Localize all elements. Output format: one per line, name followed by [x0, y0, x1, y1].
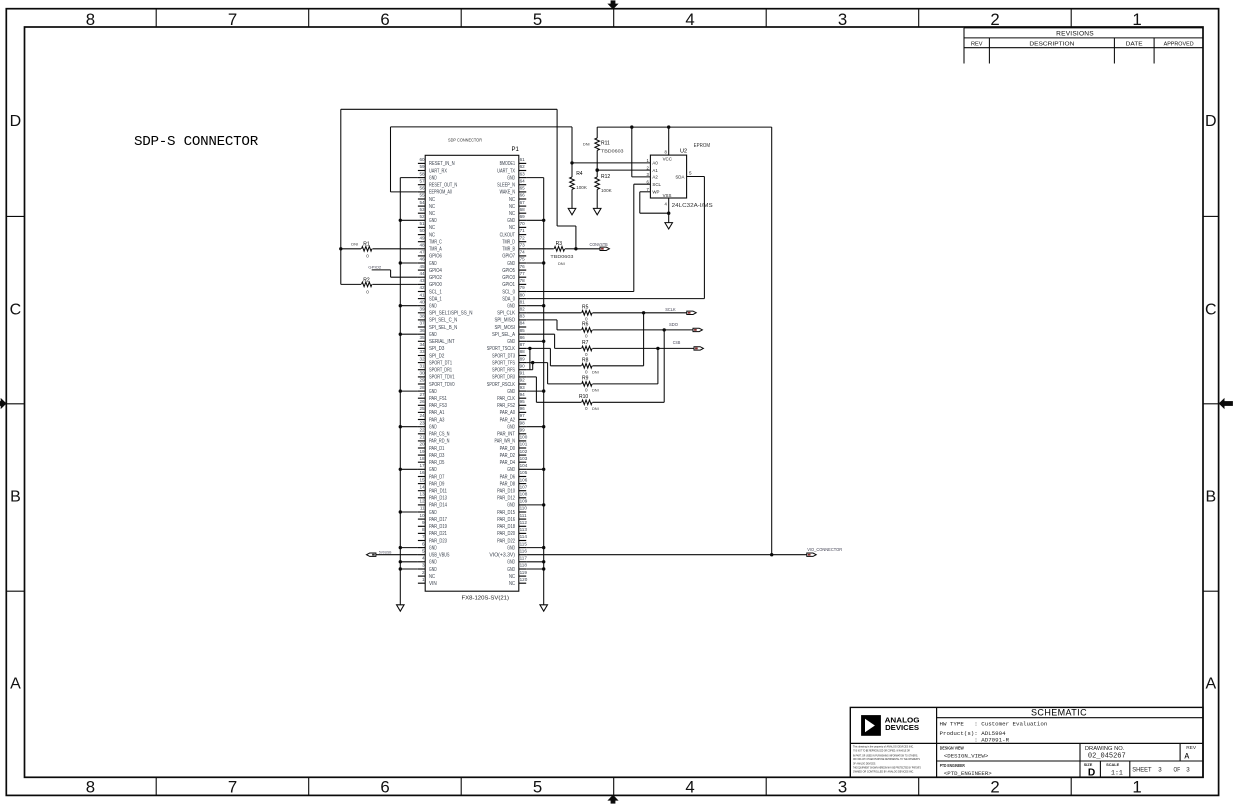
- svg-text:GPIO6: GPIO6: [429, 254, 442, 260]
- svg-text:VIO(+3.3V): VIO(+3.3V): [489, 553, 515, 559]
- svg-text:SDP CONNECTOR: SDP CONNECTOR: [448, 138, 483, 143]
- svg-text:12: 12: [419, 499, 425, 504]
- svg-text:0: 0: [585, 316, 588, 321]
- svg-text:109: 109: [520, 499, 528, 504]
- svg-text:GND: GND: [429, 510, 437, 516]
- svg-text:PAR_A2: PAR_A2: [500, 417, 515, 423]
- svg-text:GND: GND: [507, 545, 515, 551]
- svg-text:98: 98: [520, 420, 526, 425]
- svg-text:02_045267: 02_045267: [1088, 753, 1126, 761]
- svg-text:13: 13: [419, 492, 425, 497]
- svg-text:SDA: SDA: [675, 174, 684, 179]
- svg-text:29: 29: [419, 378, 425, 383]
- svg-text:PAR_FS2: PAR_FS2: [497, 403, 515, 409]
- svg-text:91: 91: [520, 371, 526, 376]
- svg-text:USB_VBUS: USB_VBUS: [429, 553, 450, 559]
- svg-text:79: 79: [520, 285, 526, 290]
- svg-text:C: C: [10, 301, 22, 318]
- svg-text:SIZE: SIZE: [1084, 762, 1093, 767]
- svg-text:8: 8: [86, 777, 95, 796]
- svg-text:SPI_SEL1\SPI_SS_N: SPI_SEL1\SPI_SS_N: [429, 311, 473, 317]
- svg-text:PAR_FS1: PAR_FS1: [429, 396, 447, 402]
- svg-text:43: 43: [419, 278, 425, 283]
- svg-text:R11: R11: [601, 140, 610, 146]
- svg-text:PAR_D6: PAR_D6: [500, 474, 515, 480]
- svg-text:NC: NC: [429, 232, 435, 238]
- svg-text:3: 3: [1186, 766, 1190, 773]
- svg-text:APPROVED: APPROVED: [1164, 41, 1194, 47]
- svg-text:59: 59: [419, 164, 425, 169]
- svg-text:65: 65: [520, 186, 526, 191]
- svg-text:101: 101: [520, 442, 528, 447]
- svg-text:D: D: [10, 113, 22, 130]
- svg-text:SPORT_DR3: SPORT_DR3: [492, 375, 515, 381]
- svg-text:77: 77: [520, 271, 526, 276]
- svg-text:SCHEMATIC: SCHEMATIC: [1031, 708, 1087, 718]
- svg-text:45: 45: [419, 264, 425, 269]
- svg-text:RESET_IN_N: RESET_IN_N: [429, 161, 455, 167]
- svg-text:SCL_0: SCL_0: [502, 289, 515, 295]
- svg-text:0: 0: [366, 254, 369, 259]
- svg-text:PAR_D5: PAR_D5: [429, 460, 444, 466]
- svg-text:R1: R1: [363, 242, 370, 248]
- svg-text:55: 55: [419, 193, 425, 198]
- svg-text:0: 0: [585, 388, 588, 393]
- svg-text:GND: GND: [429, 261, 437, 267]
- svg-text:100K: 100K: [576, 185, 588, 190]
- svg-text:51: 51: [419, 221, 425, 226]
- svg-text:110: 110: [520, 506, 528, 511]
- svg-text:NC: NC: [509, 225, 515, 231]
- svg-text:24LC32A-I/MS: 24LC32A-I/MS: [672, 203, 714, 209]
- svg-text:VSS: VSS: [663, 193, 672, 198]
- svg-text:GND: GND: [507, 560, 515, 566]
- svg-text:VIO_CONNECTOR: VIO_CONNECTOR: [807, 547, 842, 552]
- svg-text:20: 20: [419, 442, 425, 447]
- svg-text:GND: GND: [507, 389, 515, 395]
- svg-text:40: 40: [419, 299, 425, 304]
- svg-text:<DESIGN_VIEW>: <DESIGN_VIEW>: [944, 753, 989, 760]
- svg-text:GND: GND: [429, 425, 437, 431]
- svg-text:CSB: CSB: [673, 340, 681, 345]
- svg-text:108: 108: [520, 492, 528, 497]
- svg-text:88: 88: [520, 349, 526, 354]
- svg-text:GND: GND: [507, 304, 515, 310]
- svg-text:BMODE1: BMODE1: [500, 161, 515, 167]
- svg-text:75: 75: [520, 257, 526, 262]
- svg-text:118: 118: [520, 563, 528, 568]
- svg-text:PAR_D4: PAR_D4: [500, 460, 515, 466]
- svg-text:5: 5: [533, 10, 542, 29]
- svg-text:VIN: VIN: [429, 581, 437, 587]
- svg-text:DATE: DATE: [1126, 41, 1143, 47]
- svg-text:89: 89: [520, 356, 526, 361]
- svg-text:44: 44: [419, 271, 425, 276]
- svg-text:GND: GND: [507, 218, 515, 224]
- svg-text:RESET_OUT_N: RESET_OUT_N: [429, 183, 457, 189]
- svg-text:GND: GND: [429, 304, 437, 310]
- svg-text:NC: NC: [509, 197, 515, 203]
- svg-text:PAR_D0: PAR_D0: [500, 446, 515, 452]
- svg-text:U2: U2: [680, 149, 687, 155]
- svg-text:A: A: [10, 676, 21, 693]
- svg-text:104: 104: [520, 463, 528, 468]
- svg-text:DESIGN VIEW: DESIGN VIEW: [940, 746, 965, 751]
- svg-text:15: 15: [419, 477, 425, 482]
- svg-text:UART_RX: UART_RX: [429, 168, 447, 174]
- svg-text:SPI_SEL_B_N: SPI_SEL_B_N: [429, 325, 457, 331]
- svg-text:32: 32: [419, 356, 425, 361]
- svg-text:85: 85: [520, 328, 526, 333]
- svg-text:DRAWING NO.: DRAWING NO.: [1085, 746, 1125, 752]
- svg-text:68: 68: [520, 207, 526, 212]
- svg-text:GND: GND: [429, 567, 437, 573]
- svg-text:PAR_D7: PAR_D7: [429, 474, 444, 480]
- svg-text:GPIO1: GPIO1: [502, 282, 515, 288]
- svg-text:NC: NC: [429, 574, 435, 580]
- svg-text:PAR_WR_N: PAR_WR_N: [495, 439, 516, 445]
- svg-text:70: 70: [520, 221, 526, 226]
- svg-text:R5: R5: [582, 305, 589, 311]
- svg-text:2: 2: [422, 570, 425, 575]
- svg-text:1: 1: [1132, 10, 1141, 29]
- svg-text:78: 78: [520, 278, 526, 283]
- svg-text:DNI: DNI: [558, 261, 565, 266]
- svg-text:PAR_D8: PAR_D8: [500, 481, 515, 487]
- svg-text:5V0USB: 5V0USB: [379, 550, 392, 555]
- svg-text:GND: GND: [429, 175, 437, 181]
- svg-text:SPI_D3: SPI_D3: [429, 346, 444, 352]
- svg-text:SPORT_TSCLK: SPORT_TSCLK: [487, 346, 516, 352]
- svg-text:82: 82: [520, 307, 526, 312]
- svg-text:TMR_D: TMR_D: [502, 240, 515, 246]
- svg-text:1: 1: [422, 577, 425, 582]
- svg-text:3: 3: [838, 10, 847, 29]
- svg-text:R6: R6: [582, 322, 589, 328]
- svg-text:A: A: [1205, 676, 1216, 693]
- svg-text:REVISIONS: REVISIONS: [1056, 31, 1094, 38]
- svg-text:6: 6: [380, 777, 389, 796]
- svg-text:GND: GND: [429, 560, 437, 566]
- svg-text:3: 3: [422, 563, 425, 568]
- svg-text:GND: GND: [507, 503, 515, 509]
- svg-text:1:1: 1:1: [1111, 770, 1123, 777]
- svg-text:84: 84: [520, 321, 526, 326]
- svg-text:R3: R3: [556, 241, 563, 247]
- svg-text:GPIO5: GPIO5: [502, 268, 515, 274]
- svg-text:81: 81: [520, 299, 526, 304]
- svg-text:P1: P1: [512, 147, 520, 153]
- svg-text:72: 72: [520, 235, 526, 240]
- svg-text:DNI: DNI: [592, 406, 599, 411]
- svg-text:3: 3: [1158, 766, 1162, 773]
- svg-text:SPI_D2: SPI_D2: [429, 353, 444, 359]
- svg-text:NC: NC: [509, 204, 515, 210]
- svg-text:33: 33: [419, 349, 425, 354]
- svg-text:41: 41: [419, 292, 425, 297]
- svg-text:IT IS NOT TO BE REPRODUCED OR: IT IS NOT TO BE REPRODUCED OR COPIED, IN…: [853, 748, 910, 752]
- svg-text:8: 8: [422, 527, 425, 532]
- svg-text:PAR_D22: PAR_D22: [497, 538, 515, 544]
- svg-text:58: 58: [419, 171, 425, 176]
- svg-text:A1: A1: [652, 168, 658, 173]
- svg-text:: AD7091-R: : AD7091-R: [940, 737, 1010, 744]
- svg-text:5: 5: [689, 171, 692, 176]
- svg-text:NC: NC: [429, 211, 435, 217]
- svg-text:OWNED OR CONTROLLED BY ANALOG: OWNED OR CONTROLLED BY ANALOG DEVICES IN…: [853, 769, 914, 773]
- svg-text:53: 53: [419, 207, 425, 212]
- svg-text:54: 54: [419, 200, 425, 205]
- svg-text:27: 27: [419, 392, 425, 397]
- svg-text:6: 6: [422, 541, 425, 546]
- svg-text:83: 83: [520, 314, 526, 319]
- svg-text:112: 112: [520, 520, 528, 525]
- svg-text:69: 69: [520, 214, 526, 219]
- svg-text:0: 0: [585, 333, 588, 338]
- svg-text:GND: GND: [429, 467, 437, 473]
- svg-text:49: 49: [419, 235, 425, 240]
- svg-text:SPORT_DR1: SPORT_DR1: [429, 368, 452, 374]
- svg-text:11: 11: [420, 506, 425, 511]
- svg-text:4: 4: [422, 556, 425, 561]
- svg-text:80: 80: [520, 292, 526, 297]
- svg-text:SPORT_RFS: SPORT_RFS: [492, 368, 515, 374]
- svg-text:SLEEP_N: SLEEP_N: [497, 183, 515, 189]
- svg-text:16: 16: [419, 470, 425, 475]
- svg-text:14: 14: [419, 484, 425, 489]
- svg-text:115: 115: [520, 541, 528, 546]
- svg-text:63: 63: [520, 171, 526, 176]
- svg-text:PAR_D11: PAR_D11: [429, 489, 447, 495]
- svg-text:0: 0: [585, 370, 588, 375]
- svg-text:GND: GND: [507, 425, 515, 431]
- svg-text:0: 0: [366, 289, 369, 294]
- svg-text:23: 23: [419, 420, 425, 425]
- svg-text:GND: GND: [507, 339, 515, 345]
- svg-text:TMR_C: TMR_C: [429, 240, 442, 246]
- svg-text:EPROM: EPROM: [694, 143, 711, 149]
- svg-text:R9: R9: [582, 376, 589, 382]
- svg-text:9: 9: [422, 520, 425, 525]
- svg-text:7: 7: [422, 534, 425, 539]
- svg-text:5: 5: [422, 548, 425, 553]
- svg-text:PAR_D3: PAR_D3: [429, 453, 444, 459]
- svg-text:WAKE_N: WAKE_N: [500, 190, 516, 196]
- svg-text:REV: REV: [971, 41, 983, 47]
- svg-text:FX8-120S-SV(21): FX8-120S-SV(21): [462, 596, 510, 602]
- svg-text:PAR_D14: PAR_D14: [429, 503, 447, 509]
- svg-text:100K: 100K: [601, 188, 613, 193]
- svg-text:56: 56: [419, 186, 425, 191]
- svg-text:111: 111: [520, 513, 527, 518]
- svg-text:SDP-S CONNECTOR: SDP-S CONNECTOR: [134, 134, 259, 150]
- svg-text:PAR_D18: PAR_D18: [497, 524, 515, 530]
- svg-text:D: D: [1205, 113, 1217, 130]
- svg-text:NC: NC: [509, 581, 515, 587]
- svg-text:116: 116: [520, 548, 528, 553]
- svg-text:7: 7: [228, 777, 237, 796]
- svg-text:37: 37: [419, 321, 425, 326]
- svg-text:R2: R2: [363, 277, 370, 283]
- svg-text:38: 38: [419, 314, 425, 319]
- svg-text:74: 74: [520, 250, 526, 255]
- svg-text:OF ANALOG DEVICES.: OF ANALOG DEVICES.: [853, 761, 876, 765]
- svg-text:NC: NC: [509, 574, 515, 580]
- svg-text:4: 4: [685, 10, 694, 29]
- svg-text:GPIO0: GPIO0: [429, 282, 442, 288]
- svg-text:GPIO4: GPIO4: [429, 268, 442, 274]
- svg-text:PAR_CS_N: PAR_CS_N: [429, 432, 450, 438]
- svg-text:46: 46: [419, 257, 425, 262]
- svg-text:PAR_D20: PAR_D20: [497, 531, 515, 537]
- svg-text:28: 28: [419, 385, 425, 390]
- svg-text:42: 42: [419, 285, 425, 290]
- svg-text:D: D: [1088, 767, 1095, 778]
- svg-text:A: A: [1184, 752, 1189, 761]
- svg-text:PAR_D16: PAR_D16: [497, 517, 515, 523]
- svg-text:GND: GND: [507, 567, 515, 573]
- svg-text:B: B: [10, 489, 21, 506]
- svg-text:34: 34: [419, 342, 425, 347]
- svg-text:120: 120: [520, 577, 528, 582]
- svg-text:100: 100: [520, 435, 528, 440]
- svg-text:24: 24: [419, 413, 425, 418]
- svg-text:7: 7: [228, 10, 237, 29]
- svg-text:21: 21: [419, 435, 425, 440]
- svg-text:48: 48: [419, 243, 425, 248]
- svg-text:SPORT_DT1: SPORT_DT1: [429, 360, 452, 366]
- svg-text:DNI: DNI: [592, 370, 599, 375]
- svg-text:107: 107: [520, 484, 528, 489]
- svg-text:25: 25: [419, 406, 425, 411]
- svg-text:PAR_D10: PAR_D10: [497, 489, 515, 495]
- svg-text:106: 106: [520, 477, 528, 482]
- svg-text:GPIO2: GPIO2: [368, 265, 382, 270]
- svg-text:90: 90: [520, 363, 526, 368]
- svg-text:1: 1: [1132, 777, 1141, 796]
- svg-text:95: 95: [520, 399, 526, 404]
- svg-text:VCC: VCC: [663, 156, 672, 161]
- svg-text:PAR_CLK: PAR_CLK: [497, 396, 515, 402]
- svg-text:94: 94: [520, 392, 526, 397]
- svg-text:26: 26: [419, 399, 425, 404]
- svg-text:PAR_A1: PAR_A1: [429, 410, 444, 416]
- svg-text:103: 103: [520, 456, 528, 461]
- svg-text:66: 66: [520, 193, 526, 198]
- svg-text:5: 5: [533, 777, 542, 796]
- svg-text:TBD0603: TBD0603: [550, 254, 574, 259]
- svg-text:PAR_A3: PAR_A3: [429, 417, 444, 423]
- svg-text:SDO: SDO: [669, 322, 679, 327]
- svg-text:113: 113: [520, 527, 528, 532]
- svg-text:R7: R7: [582, 340, 589, 346]
- svg-text:PAR_D15: PAR_D15: [497, 510, 515, 516]
- svg-text:61: 61: [520, 157, 526, 162]
- svg-text:71: 71: [520, 228, 526, 233]
- svg-text:PAR_INT: PAR_INT: [497, 432, 516, 438]
- svg-text:47: 47: [419, 250, 425, 255]
- svg-text:GND: GND: [429, 218, 437, 224]
- svg-text:10: 10: [419, 513, 425, 518]
- svg-text:PAR_RD_N: PAR_RD_N: [429, 439, 450, 445]
- svg-text:CONVSTB: CONVSTB: [590, 242, 608, 247]
- svg-text:R4: R4: [576, 171, 583, 177]
- svg-text:PAR_D9: PAR_D9: [429, 481, 444, 487]
- svg-text:19: 19: [419, 449, 425, 454]
- svg-text:SCALE: SCALE: [1106, 762, 1120, 767]
- svg-text:8: 8: [86, 10, 95, 29]
- svg-text:PTD ENGINEER: PTD ENGINEER: [940, 763, 966, 768]
- svg-text:SCL_1: SCL_1: [429, 289, 442, 295]
- svg-text:86: 86: [520, 335, 526, 340]
- svg-text:0: 0: [585, 352, 588, 357]
- svg-text:SPI_SEL_A: SPI_SEL_A: [492, 332, 515, 338]
- svg-text:30: 30: [419, 371, 425, 376]
- svg-text:NC: NC: [429, 197, 435, 203]
- svg-text:SDA_1: SDA_1: [429, 296, 442, 302]
- svg-text:NC: NC: [429, 204, 435, 210]
- svg-text:NC: NC: [429, 225, 435, 231]
- svg-text:GND: GND: [429, 332, 437, 338]
- svg-text:GPIO2: GPIO2: [429, 275, 442, 281]
- svg-text:2: 2: [990, 777, 999, 796]
- svg-text:A0: A0: [652, 161, 658, 166]
- svg-text:GND: GND: [507, 261, 515, 267]
- svg-text:SPORT_TDV1: SPORT_TDV1: [429, 375, 455, 381]
- svg-text:SPI_MISO: SPI_MISO: [495, 318, 516, 324]
- svg-text:119: 119: [520, 570, 528, 575]
- svg-text:SPI_CLK: SPI_CLK: [497, 311, 515, 317]
- svg-text:76: 76: [520, 264, 526, 269]
- svg-text:SHEET: SHEET: [1132, 766, 1152, 773]
- svg-text:50: 50: [419, 228, 425, 233]
- svg-text:OF: OF: [1174, 766, 1181, 773]
- svg-text:OR FOR ANY OTHER PURPOSE DETRI: OR FOR ANY OTHER PURPOSE DETRIMENTAL TO …: [853, 757, 920, 761]
- svg-text:PAR_D17: PAR_D17: [429, 517, 447, 523]
- svg-text:105: 105: [520, 470, 528, 475]
- svg-text:117: 117: [520, 556, 528, 561]
- svg-text:3: 3: [838, 777, 847, 796]
- svg-text:64: 64: [520, 178, 526, 183]
- svg-text:SCL: SCL: [652, 182, 661, 187]
- svg-text:31: 31: [419, 363, 425, 368]
- svg-text:TBD0603: TBD0603: [601, 148, 624, 153]
- svg-text:PAR_D19: PAR_D19: [429, 524, 447, 530]
- svg-text:17: 17: [419, 463, 425, 468]
- svg-text:HW TYPE : Customer Evaluatio: HW TYPE : Customer Evaluation: [940, 721, 1048, 728]
- svg-text:DNI: DNI: [592, 388, 599, 393]
- svg-text:SDA_0: SDA_0: [502, 296, 515, 302]
- svg-text:GPIO7: GPIO7: [502, 254, 515, 260]
- svg-text:PAR_D21: PAR_D21: [429, 531, 447, 537]
- svg-text:EEPROM_A0: EEPROM_A0: [429, 190, 452, 196]
- svg-text:PAR_D23: PAR_D23: [429, 538, 447, 544]
- svg-text:0: 0: [585, 406, 588, 411]
- svg-text:60: 60: [419, 157, 425, 162]
- svg-text:114: 114: [520, 534, 528, 539]
- svg-text:IN PART, OR USED IN FURNISHING: IN PART, OR USED IN FURNISHING INFORMATI…: [853, 753, 918, 757]
- svg-text:R12: R12: [601, 174, 610, 180]
- svg-text:GPIO3: GPIO3: [502, 275, 515, 281]
- svg-text:SERIAL_INT: SERIAL_INT: [429, 339, 455, 345]
- svg-text:57: 57: [419, 178, 425, 183]
- svg-text:PAR_FS3: PAR_FS3: [429, 403, 447, 409]
- svg-text:GND: GND: [507, 467, 515, 473]
- svg-text:PAR_D2: PAR_D2: [500, 453, 515, 459]
- svg-text:SPORT_RSCLK: SPORT_RSCLK: [487, 382, 516, 388]
- svg-text:73: 73: [520, 243, 526, 248]
- svg-text:52: 52: [419, 214, 425, 219]
